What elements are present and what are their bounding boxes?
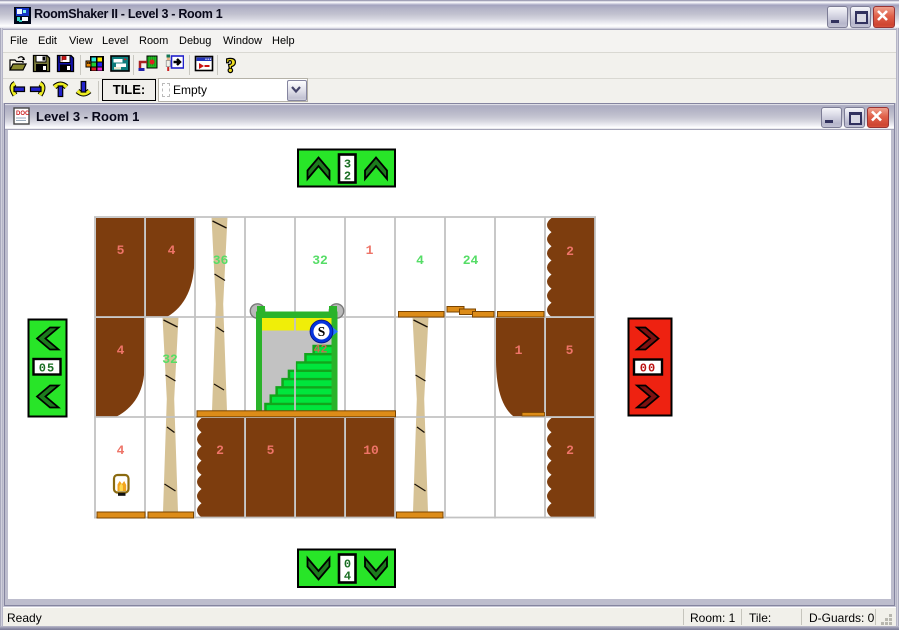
svg-text:4: 4 <box>416 253 424 268</box>
svg-text:32: 32 <box>312 253 328 268</box>
svg-text:2: 2 <box>566 244 574 259</box>
svg-text:4: 4 <box>117 343 125 358</box>
svg-text:1: 1 <box>515 343 523 358</box>
svg-text:1: 1 <box>366 243 374 258</box>
svg-text:32: 32 <box>162 352 178 367</box>
svg-text:4: 4 <box>344 570 351 584</box>
svg-text:4: 4 <box>168 243 176 258</box>
svg-text:10: 10 <box>363 443 379 458</box>
svg-text:S: S <box>318 324 326 339</box>
svg-text:5: 5 <box>566 343 574 358</box>
svg-text:2: 2 <box>344 170 351 184</box>
svg-text:24: 24 <box>463 253 479 268</box>
svg-text:42: 42 <box>314 344 328 357</box>
svg-text:2: 2 <box>216 443 224 458</box>
svg-text:2: 2 <box>566 443 574 458</box>
svg-text:00: 00 <box>640 362 656 376</box>
svg-text:5: 5 <box>117 243 125 258</box>
svg-text:36: 36 <box>213 253 229 268</box>
svg-text:4: 4 <box>117 443 125 458</box>
svg-text:05: 05 <box>39 362 55 376</box>
svg-text:5: 5 <box>267 443 275 458</box>
